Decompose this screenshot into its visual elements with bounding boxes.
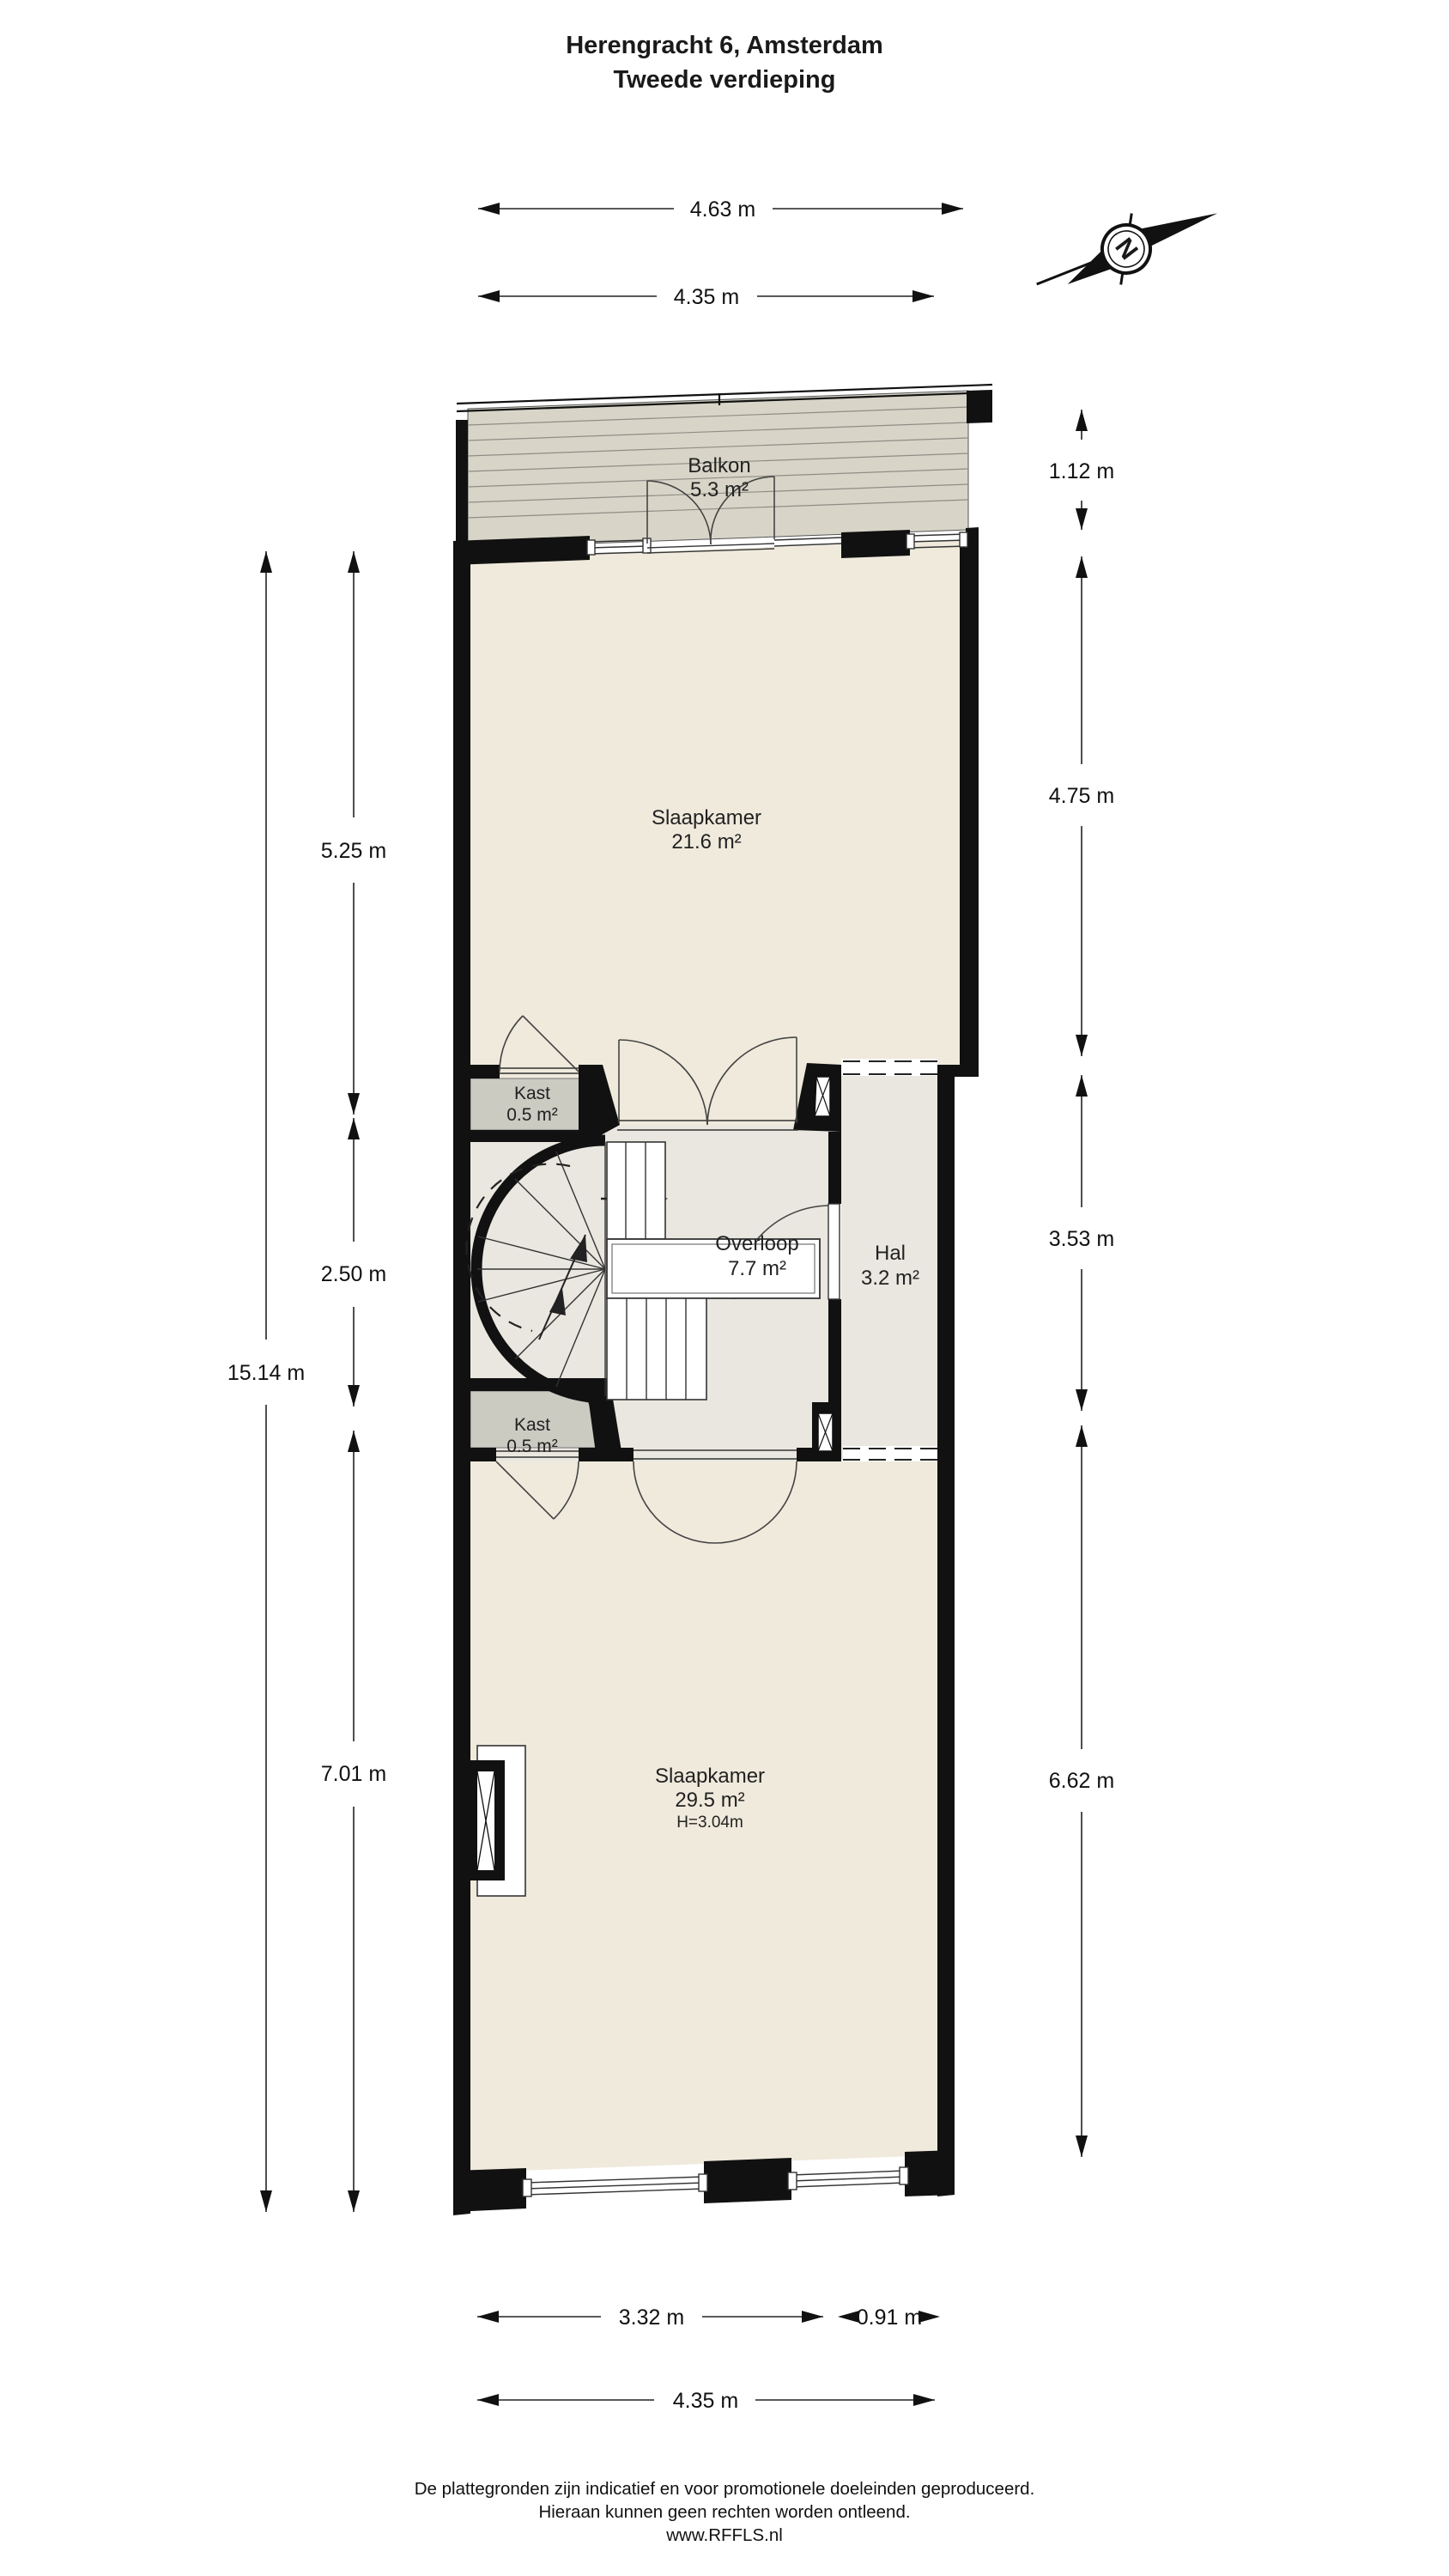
kast2-area: 0.5 m² [506,1437,558,1456]
rear-wall-right-corner [905,2150,955,2196]
dim-left-middle: 2.50 m [321,1118,386,1406]
dim-bottom-right: 0.91 m [838,2306,940,2330]
balkon-right-block [967,390,992,423]
svg-text:3.32 m: 3.32 m [619,2306,684,2330]
slaapkamer1-area: 21.6 m² [671,830,741,854]
balkon-left-wall [456,420,468,550]
rear-window-right [788,2167,908,2190]
footer-line2: Hieraan kunnen geen rechten worden ontle… [538,2502,910,2522]
slaapkamer1-name: Slaapkamer [652,806,761,829]
svg-text:4.75 m: 4.75 m [1049,784,1114,808]
slaapkamer2-name: Slaapkamer [655,1765,765,1788]
right-wall-step [937,1065,979,1077]
dim-top-outer: 4.63 m [478,197,963,222]
hal-wall-upper [828,1132,841,1204]
bedroom2-wall-a [453,1448,496,1461]
kast1-area: 0.5 m² [506,1105,558,1125]
dim-right-middle: 3.53 m [1049,1075,1114,1411]
dim-top-inner: 4.35 m [478,285,934,309]
dim-left-lower: 7.01 m [321,1431,386,2212]
front-wall-pier [841,530,910,558]
dim-bottom-left: 3.32 m [477,2306,823,2330]
dim-left-total: 15.14 m [227,551,305,2212]
hal-name: Hal [875,1242,906,1265]
right-wall-lower [937,1075,955,2196]
dim-left-upper: 5.25 m [321,551,386,1115]
bedroom2-wall-c [797,1448,814,1461]
slaapkamer2-height: H=3.04m [676,1814,743,1832]
straight-stair-upper [607,1142,665,1239]
slaapkamer2-area: 29.5 m² [675,1789,744,1812]
dim-right-balcony: 1.12 m [1049,410,1114,530]
svg-text:3.53 m: 3.53 m [1049,1227,1114,1251]
svg-text:15.14 m: 15.14 m [227,1361,305,1385]
balkon-area: 5.3 m² [690,478,749,501]
rear-wall-pier [704,2158,791,2203]
title-line2: Tweede verdieping [614,66,836,94]
svg-text:5.25 m: 5.25 m [321,839,386,863]
rear-wall-left-corner [453,2168,526,2212]
svg-text:1.12 m: 1.12 m [1049,459,1114,483]
svg-text:2.50 m: 2.50 m [321,1262,386,1286]
svg-text:4.63 m: 4.63 m [690,197,755,222]
svg-text:7.01 m: 7.01 m [321,1762,386,1786]
footer-line3: www.RFFLS.nl [665,2525,783,2545]
balkon-name: Balkon [688,454,750,477]
fireplace [470,1746,525,1896]
floorplan-drawing: Herengracht 6, Amsterdam Tweede verdiepi… [0,0,1449,2576]
overloop-area: 7.7 m² [728,1257,786,1280]
right-wall-upper [960,532,979,1075]
bedroom2-wall-b [579,1448,634,1461]
footer-line1: De plattegronden zijn indicatief en voor… [415,2479,1035,2499]
dim-bottom-total: 4.35 m [477,2389,935,2413]
rear-window-left [523,2174,707,2196]
dim-right-lower: 6.62 m [1049,1425,1114,2157]
footer-disclaimer: De plattegronden zijn indicatief en voor… [415,2479,1035,2545]
svg-text:0.91 m: 0.91 m [857,2306,922,2330]
page-title: Herengracht 6, Amsterdam Tweede verdiepi… [566,32,883,94]
compass-rose-icon: N [1025,186,1229,311]
kast2-name: Kast [514,1415,550,1435]
title-line1: Herengracht 6, Amsterdam [566,32,883,59]
hal-wall-lower [828,1299,841,1404]
dim-right-upper: 4.75 m [1049,556,1114,1056]
floorplan-page: Herengracht 6, Amsterdam Tweede verdiepi… [0,0,1449,2576]
hal-area: 3.2 m² [861,1267,919,1290]
svg-text:6.62 m: 6.62 m [1049,1769,1114,1793]
svg-text:4.35 m: 4.35 m [673,2389,738,2413]
straight-stair-lower [607,1298,706,1400]
overloop-name: Overloop [715,1232,798,1255]
kast1-name: Kast [514,1084,550,1103]
svg-text:4.35 m: 4.35 m [674,285,739,309]
kast1-top-wall-left [453,1065,500,1078]
